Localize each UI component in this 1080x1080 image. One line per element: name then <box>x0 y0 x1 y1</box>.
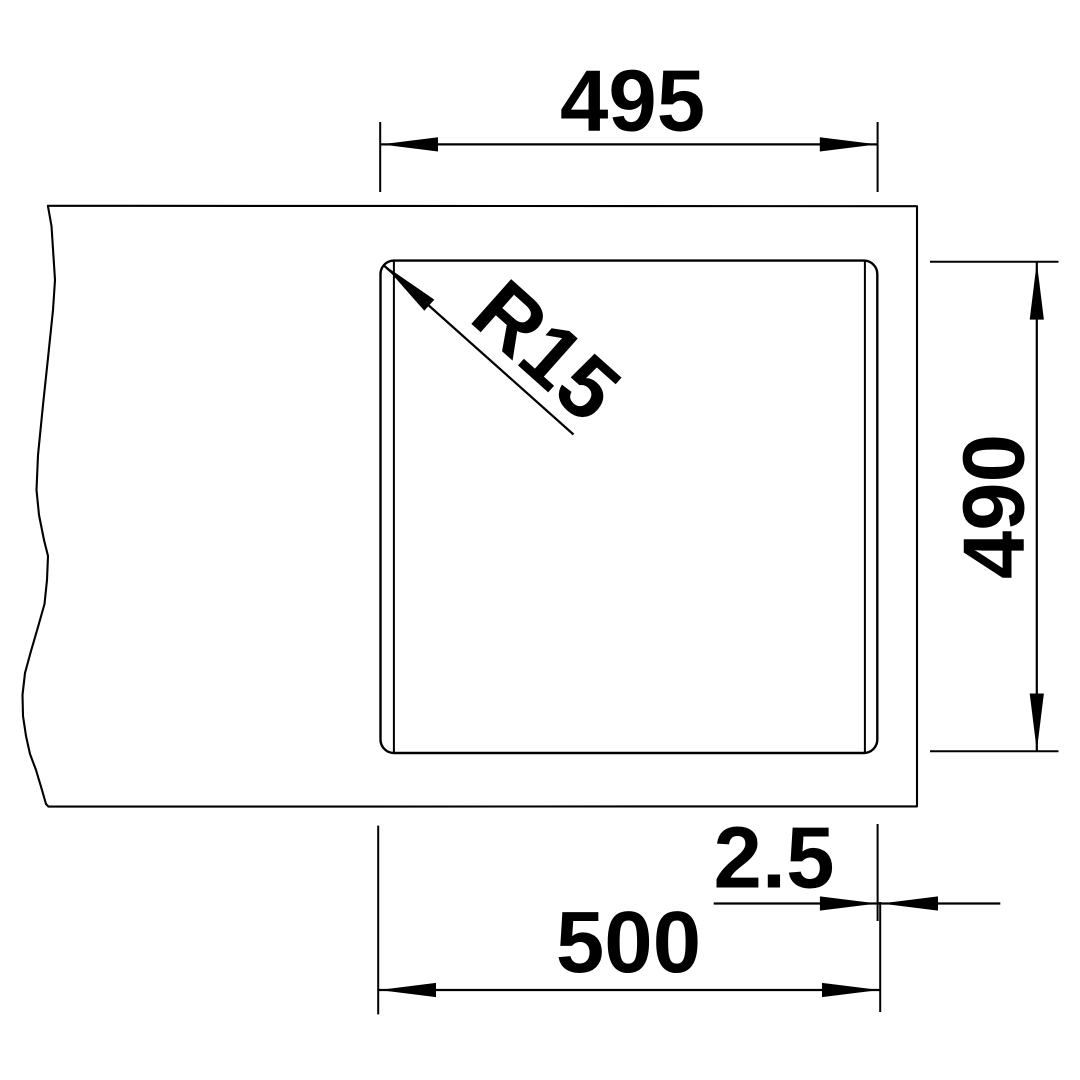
svg-text:495: 495 <box>560 53 705 150</box>
svg-text:490: 490 <box>945 434 1042 579</box>
svg-text:500: 500 <box>556 894 701 991</box>
svg-text:2.5: 2.5 <box>714 810 835 907</box>
